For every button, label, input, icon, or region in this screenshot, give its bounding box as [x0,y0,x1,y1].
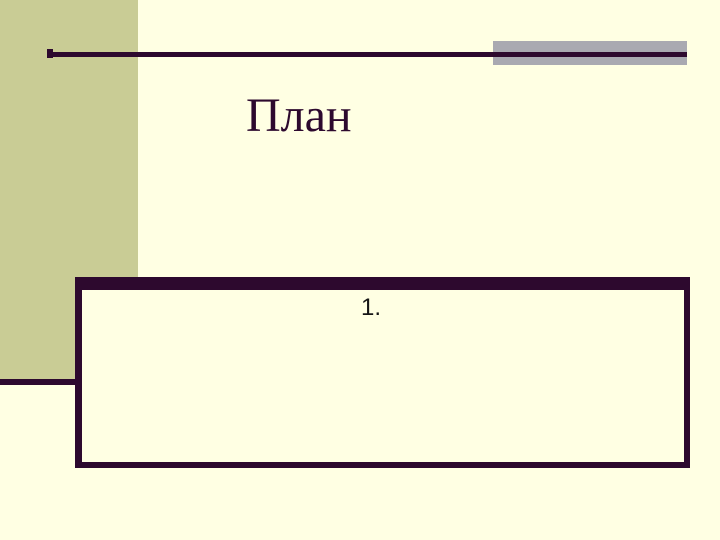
slide-title: План [246,92,352,140]
title-underline-rule [48,52,687,57]
presentation-slide: План 1. [0,0,720,540]
content-placeholder-box: 1. [75,277,690,468]
list-item-number: 1. [82,290,684,323]
